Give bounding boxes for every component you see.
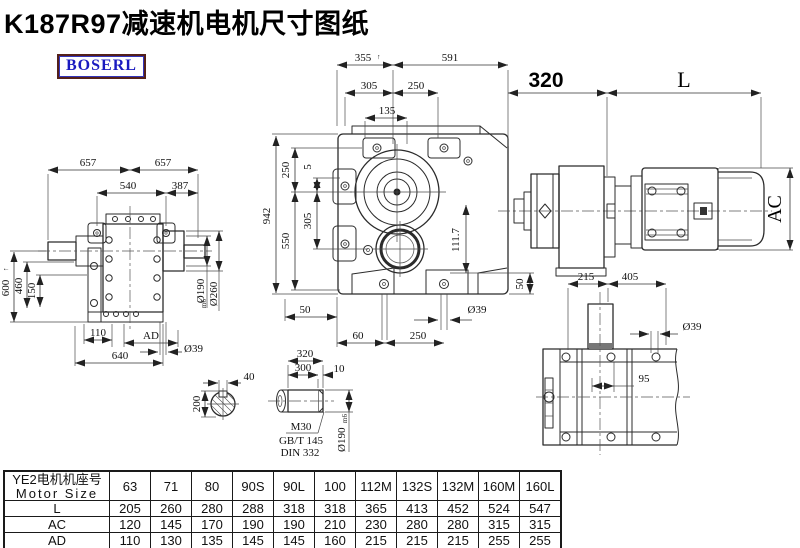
dim-40: 40 xyxy=(244,371,256,383)
col-header-132s: 132S xyxy=(397,471,438,501)
dim-550: 550 xyxy=(280,232,292,249)
cell-AC-80: 170 xyxy=(192,517,233,533)
coupling xyxy=(604,177,615,257)
dim-dia39-front: Ø39 xyxy=(468,304,487,316)
dim-320-assembly: 320 xyxy=(528,69,563,92)
dim-110: 110 xyxy=(90,327,107,339)
col-header-71: 71 xyxy=(151,471,192,501)
dim-200: 200 xyxy=(191,395,203,412)
label-gbt-145: GB/T 145 xyxy=(279,435,324,447)
col-header-80: 80 xyxy=(192,471,233,501)
dim-540: 540 xyxy=(120,180,137,192)
dim-60: 60 xyxy=(353,330,365,342)
cell-AC-90l: 190 xyxy=(274,517,315,533)
dim-355: 355 xyxy=(355,52,372,64)
cell-AD-63: 110 xyxy=(110,533,151,548)
output-bore xyxy=(372,221,428,277)
dim-AC: AC xyxy=(764,195,786,223)
reducer-housing xyxy=(559,166,604,268)
cell-AD-132s: 215 xyxy=(397,533,438,548)
cell-AD-112m: 215 xyxy=(356,533,397,548)
col-header-90l: 90L xyxy=(274,471,315,501)
cell-AD-100: 160 xyxy=(315,533,356,548)
dim-640: 640 xyxy=(112,350,129,362)
cell-AC-112m: 230 xyxy=(356,517,397,533)
row-label-AC: AC xyxy=(4,517,110,533)
motor-flange xyxy=(631,176,642,248)
dim-50-right: 50 xyxy=(514,278,526,290)
shaft-section-view: 40 200 xyxy=(191,371,255,424)
right-foot xyxy=(426,270,468,294)
dim-600: 600 xyxy=(0,279,12,296)
col-header-160m: 160M xyxy=(479,471,520,501)
vertical-shaft xyxy=(588,304,613,349)
cell-AD-160l: 255 xyxy=(520,533,562,548)
cell-L-132m: 452 xyxy=(438,501,479,517)
dim-250-left: 250 xyxy=(280,161,292,178)
top-view: 215 405 Ø39 95 xyxy=(536,271,702,455)
dim-dia260-side: Ø260 xyxy=(208,281,220,306)
dim-600-mark: ↑ xyxy=(2,268,10,272)
dim-657-left: 657 xyxy=(80,157,97,169)
cell-AC-63: 120 xyxy=(110,517,151,533)
header-cn: YE2电机机座号 xyxy=(5,473,109,487)
dim-355-mark: ↑ xyxy=(377,53,381,61)
cell-L-71: 260 xyxy=(151,501,192,517)
col-header-160l: 160L xyxy=(520,471,562,501)
cell-AD-71: 130 xyxy=(151,533,192,548)
shaft-detail-view: 320 300 10 M30 GB/T 145 DIN 332 Ø190 m6 xyxy=(268,348,353,459)
dim-dia39-top: Ø39 xyxy=(683,321,702,333)
dim-591: 591 xyxy=(442,52,459,64)
cell-AD-132m: 215 xyxy=(438,533,479,548)
col-header-100: 100 xyxy=(315,471,356,501)
dim-dia190-shaft: Ø190 xyxy=(336,427,348,452)
row-label-L: L xyxy=(4,501,110,517)
base-plate xyxy=(88,312,163,322)
drawing-page: K187R97减速机电机尺寸图纸 BOSERL xyxy=(0,0,800,548)
gearbox-front-body xyxy=(338,134,508,294)
dim-387: 387 xyxy=(172,180,189,192)
cell-AC-160m: 315 xyxy=(479,517,520,533)
cell-L-90l: 318 xyxy=(274,501,315,517)
dim-150: 150 xyxy=(26,282,38,299)
cell-AD-80: 135 xyxy=(192,533,233,548)
cell-AC-132s: 280 xyxy=(397,517,438,533)
dim-135: 135 xyxy=(379,105,396,117)
dim-111-7: 111.7 xyxy=(450,228,462,252)
col-header-90s: 90S xyxy=(233,471,274,501)
cell-L-90s: 288 xyxy=(233,501,274,517)
dim-305-top: 305 xyxy=(361,80,378,92)
cell-L-132s: 413 xyxy=(397,501,438,517)
cell-L-63: 205 xyxy=(110,501,151,517)
dim-dia190-tol-side: m6 xyxy=(200,299,208,308)
dim-215: 215 xyxy=(578,271,595,283)
motor-size-table: YE2电机机座号 Motor Size 63 71 80 90S 90L 100… xyxy=(3,470,562,548)
dim-460: 460 xyxy=(13,277,25,294)
fan-cover xyxy=(718,172,764,246)
front-view: 355 ↑ 591 305 250 135 942 250 550 xyxy=(261,52,534,347)
dim-95: 95 xyxy=(639,373,651,385)
row-label-AD: AD xyxy=(4,533,110,548)
dim-5: 5 xyxy=(302,164,314,170)
table-row-L: L 205 260 280 288 318 318 365 413 452 52… xyxy=(4,501,561,517)
label-din-332: DIN 332 xyxy=(281,447,320,459)
cell-AD-90s: 145 xyxy=(233,533,274,548)
label-m30: M30 xyxy=(291,421,312,433)
side-view: 657 657 540 387 600 ↑ 460 150 xyxy=(0,157,223,366)
cell-L-112m: 365 xyxy=(356,501,397,517)
col-header-112m: 112M xyxy=(356,471,397,501)
cell-AC-90s: 190 xyxy=(233,517,274,533)
dim-250-top: 250 xyxy=(408,80,425,92)
dim-942: 942 xyxy=(261,208,273,225)
cell-AD-90l: 145 xyxy=(274,533,315,548)
cell-L-160m: 524 xyxy=(479,501,520,517)
assembly-view: 320 L AC xyxy=(498,67,793,276)
dim-dia39-side: Ø39 xyxy=(184,343,203,355)
table-row-AC: AC 120 145 170 190 190 210 230 280 280 3… xyxy=(4,517,561,533)
dim-305-left: 305 xyxy=(302,212,314,229)
cell-L-80: 280 xyxy=(192,501,233,517)
input-bore xyxy=(350,144,446,242)
dim-AD: AD xyxy=(143,330,159,342)
cell-L-160l: 547 xyxy=(520,501,562,517)
cell-AD-160m: 255 xyxy=(479,533,520,548)
dim-657-right: 657 xyxy=(155,157,172,169)
col-header-132m: 132M xyxy=(438,471,479,501)
mounting-strip xyxy=(88,248,101,322)
cell-AC-100: 210 xyxy=(315,517,356,533)
table-header-row: YE2电机机座号 Motor Size 63 71 80 90S 90L 100… xyxy=(4,471,561,501)
cell-AC-71: 145 xyxy=(151,517,192,533)
dim-250-bottom: 250 xyxy=(410,330,427,342)
dim-300: 300 xyxy=(295,362,312,374)
dim-10: 10 xyxy=(334,363,346,375)
table-header-motor-size: YE2电机机座号 Motor Size xyxy=(4,471,110,501)
cell-L-100: 318 xyxy=(315,501,356,517)
dim-50-bottom: 50 xyxy=(300,304,312,316)
dim-L: L xyxy=(677,67,690,92)
dim-320-shaft: 320 xyxy=(297,348,314,360)
dim-dia190-tol-shaft: m6 xyxy=(341,414,349,423)
cell-AC-160l: 315 xyxy=(520,517,562,533)
technical-drawing: 657 657 540 387 600 ↑ 460 150 xyxy=(0,0,800,468)
header-en: Motor Size xyxy=(5,487,109,500)
dim-405: 405 xyxy=(622,271,639,283)
table-row-AD: AD 110 130 135 145 145 160 215 215 215 2… xyxy=(4,533,561,548)
col-header-63: 63 xyxy=(110,471,151,501)
right-shaft xyxy=(184,245,205,258)
cell-AC-132m: 280 xyxy=(438,517,479,533)
